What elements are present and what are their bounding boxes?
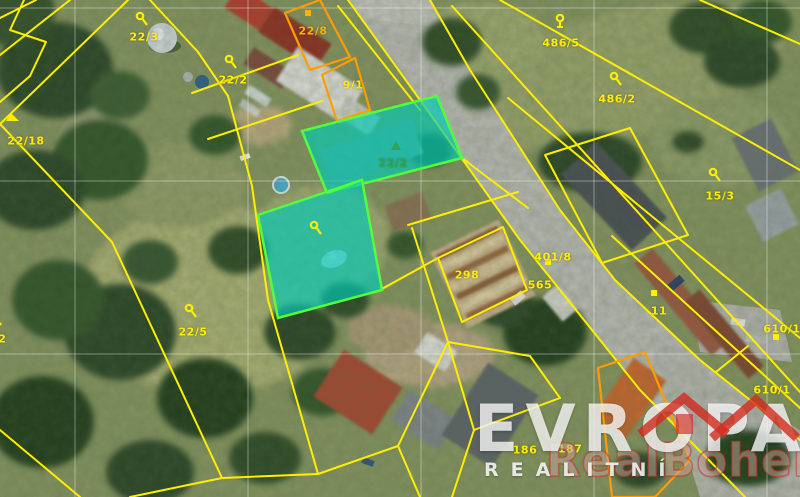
- aerial-texture: [0, 0, 800, 497]
- cadastral-map-view: 22/89/122/222/322/1822/59/2486/5486/215/…: [0, 0, 800, 497]
- aerial-photo-layer: [0, 0, 800, 497]
